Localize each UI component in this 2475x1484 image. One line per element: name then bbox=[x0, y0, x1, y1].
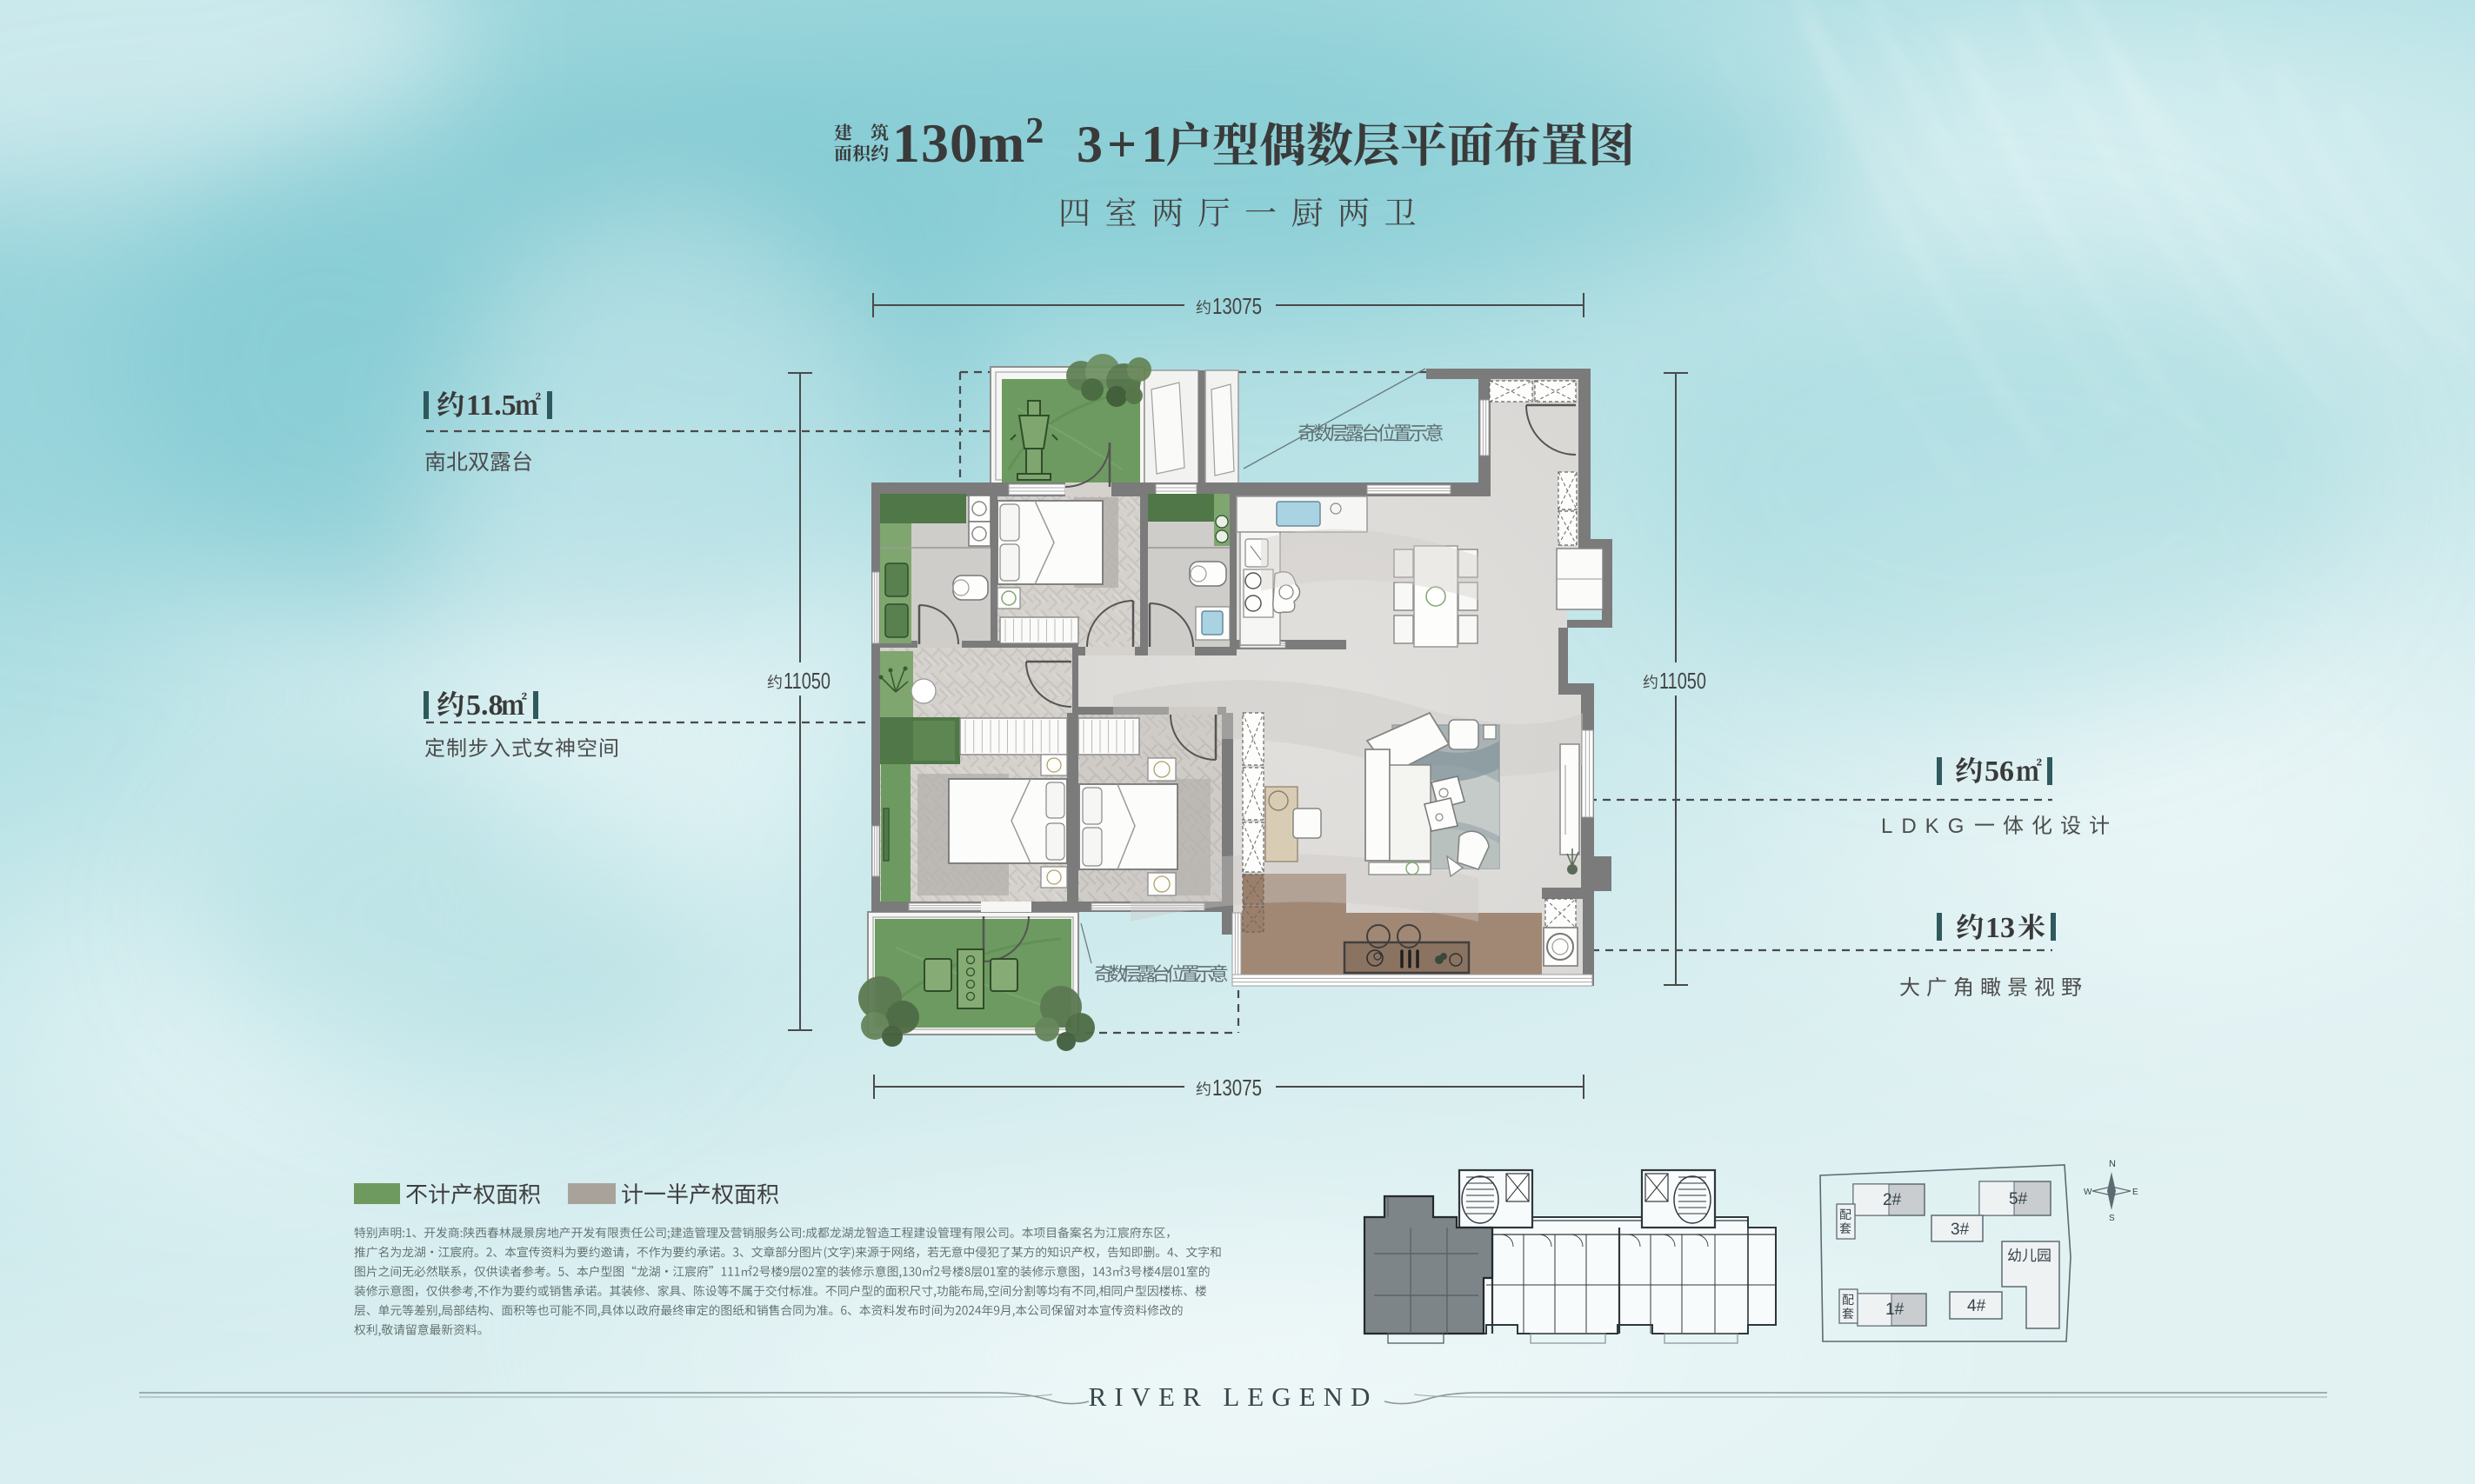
svg-text:130m2: 130m2 bbox=[892, 111, 1044, 174]
svg-text:RIVER LEGEND: RIVER LEGEND bbox=[1089, 1381, 1378, 1412]
svg-text:56: 56 bbox=[1985, 755, 2014, 788]
svg-text:13075: 13075 bbox=[1212, 1075, 1262, 1101]
svg-text:4#: 4# bbox=[1967, 1297, 1986, 1315]
svg-text:11050: 11050 bbox=[784, 668, 831, 694]
svg-text:2#: 2# bbox=[1883, 1191, 1902, 1209]
svg-text:3#: 3# bbox=[1951, 1221, 1970, 1239]
svg-text:11050: 11050 bbox=[1659, 668, 1706, 694]
svg-text:N: N bbox=[2109, 1159, 2116, 1169]
svg-text:1#: 1# bbox=[1885, 1301, 1905, 1319]
svg-text:3+1: 3+1 bbox=[1077, 116, 1171, 173]
svg-text:S: S bbox=[2109, 1214, 2115, 1223]
svg-text:13: 13 bbox=[1985, 912, 2015, 944]
svg-text:W: W bbox=[2084, 1188, 2092, 1197]
svg-text:LDKG: LDKG bbox=[1881, 815, 1972, 838]
svg-text:E: E bbox=[2132, 1188, 2138, 1197]
svg-text:13075: 13075 bbox=[1212, 293, 1262, 319]
svg-text:5#: 5# bbox=[2009, 1190, 2028, 1208]
svg-text:11.5: 11.5 bbox=[466, 389, 517, 422]
svg-text:5.8: 5.8 bbox=[466, 689, 504, 722]
